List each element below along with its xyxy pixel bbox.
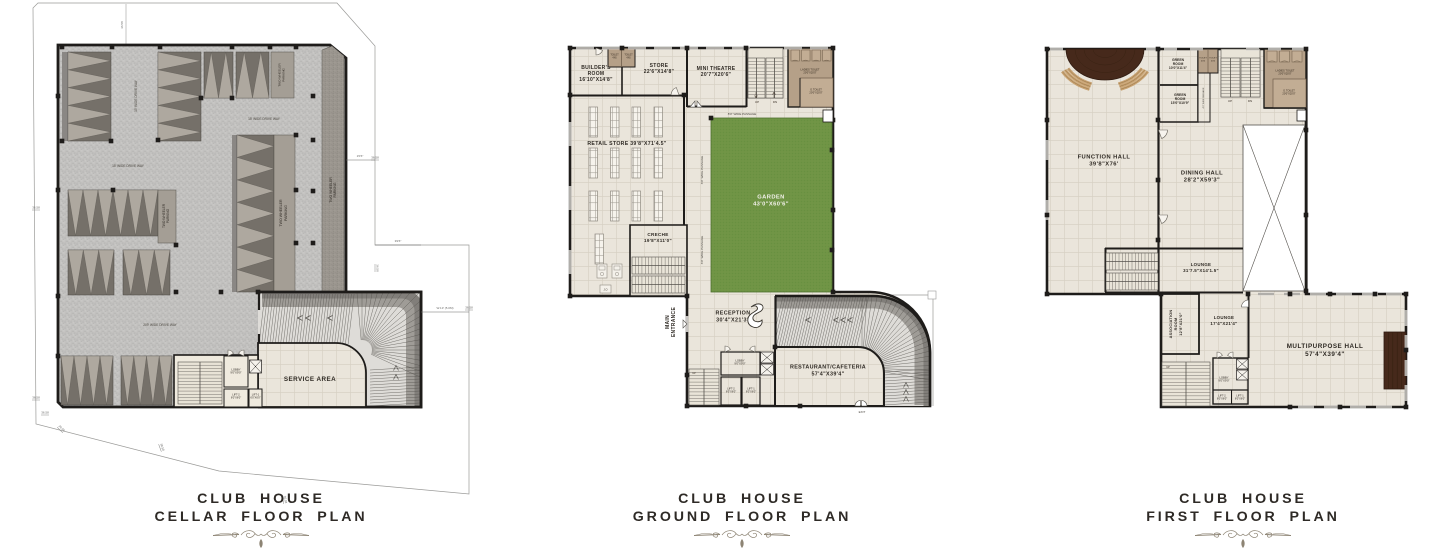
svg-text:20'0"X20'0": 20'0"X20'0": [1278, 72, 1291, 76]
svg-text:6'0"X6'0": 6'0"X6'0": [746, 390, 756, 394]
svg-text:DINING HALL: DINING HALL: [1181, 170, 1223, 176]
svg-text:SERVICE AREA: SERVICE AREA: [284, 376, 336, 383]
svg-text:PARKING: PARKING: [284, 205, 288, 221]
svg-text:UP: UP: [1228, 99, 1232, 103]
svg-text:UP: UP: [755, 100, 759, 104]
svg-text:CRECHE: CRECHE: [647, 232, 668, 237]
svg-text:12'8"X21'0": 12'8"X21'0": [1179, 312, 1183, 335]
svg-text:LOUNGE: LOUNGE: [1191, 262, 1212, 267]
svg-text:31'7.5"X14'1.5": 31'7.5"X14'1.5": [1183, 268, 1219, 273]
svg-text:20'0"X20'0": 20'0"X20'0": [809, 91, 822, 95]
svg-text:ENTRANCE: ENTRANCE: [671, 307, 677, 338]
svg-text:PARKING: PARKING: [281, 68, 285, 82]
svg-text:10'0"X11'4": 10'0"X11'4": [1169, 66, 1188, 70]
svg-text:GROUND FLOOR PLAN: GROUND FLOOR PLAN: [633, 509, 852, 525]
svg-text:MULTIPURPOSE HALL: MULTIPURPOSE HALL: [1287, 343, 1364, 350]
svg-text:39'8"X76': 39'8"X76': [1089, 162, 1119, 168]
svg-text:36.58: 36.58: [376, 264, 380, 272]
svg-text:43'0"X60'6": 43'0"X60'6": [753, 202, 789, 208]
svg-text:20'0"X20'0": 20'0"X20'0": [1282, 92, 1295, 96]
svg-text:FIRST FLOOR PLAN: FIRST FLOOR PLAN: [1146, 509, 1340, 525]
svg-text:36.58: 36.58: [120, 21, 124, 29]
svg-text:6'0" WIDE PASSAGE: 6'0" WIDE PASSAGE: [700, 236, 704, 265]
svg-text:FUNCTION HALL: FUNCTION HALL: [1078, 154, 1131, 160]
svg-text:EXIT: EXIT: [859, 410, 866, 414]
svg-text:9'0"X9'0": 9'0"X9'0": [1218, 379, 1229, 383]
svg-text:ROOM: ROOM: [1174, 318, 1178, 331]
svg-text:ROOM: ROOM: [588, 71, 605, 77]
svg-text:17'4"X21'4": 17'4"X21'4": [1210, 321, 1237, 326]
svg-text:BUILDER'S: BUILDER'S: [581, 65, 611, 71]
svg-text:6'0"X6'0": 6'0"X6'0": [726, 390, 736, 394]
svg-text:6'0"X6'0": 6'0"X6'0": [250, 396, 260, 400]
svg-text:36.58: 36.58: [41, 411, 49, 415]
svg-text:CELLAR FLOOR PLAN: CELLAR FLOOR PLAN: [155, 509, 368, 525]
svg-text:9'0"X9'0": 9'0"X9'0": [230, 371, 241, 375]
svg-text:36.58: 36.58: [371, 156, 379, 160]
svg-text:20'0"X20'0": 20'0"X20'0": [803, 71, 816, 75]
svg-text:4X6: 4X6: [626, 56, 631, 59]
svg-text:39'6": 39'6": [395, 239, 402, 243]
svg-text:4'0" WIDE PASSAGE: 4'0" WIDE PASSAGE: [1202, 87, 1205, 108]
svg-text:STORE: STORE: [650, 63, 669, 69]
svg-text:15'6": 15'6": [357, 154, 364, 158]
svg-text:15' WIDE DRIVE WAY: 15' WIDE DRIVE WAY: [112, 164, 145, 168]
svg-text:CLUB HOUSE: CLUB HOUSE: [1179, 491, 1307, 507]
svg-text:PARKING: PARKING: [333, 182, 337, 197]
svg-text:4X6: 4X6: [612, 56, 617, 59]
svg-text:30'4"X21'3": 30'4"X21'3": [716, 317, 750, 323]
svg-text:9'0"X9'0": 9'0"X9'0": [734, 362, 745, 366]
svg-text:CLUB HOUSE: CLUB HOUSE: [197, 491, 325, 507]
svg-text:UP: UP: [1166, 365, 1170, 369]
svg-text:LOUNGE: LOUNGE: [1214, 315, 1235, 320]
svg-text:MINI THEATRE: MINI THEATRE: [697, 66, 736, 72]
svg-text:15' WIDE DRIVE WAY: 15' WIDE DRIVE WAY: [134, 79, 138, 112]
svg-text:15'0"X10'9": 15'0"X10'9": [1171, 101, 1190, 105]
svg-text:PARKING: PARKING: [166, 208, 170, 223]
svg-text:22'6"X14'8": 22'6"X14'8": [644, 69, 675, 75]
svg-text:J.O: J.O: [603, 288, 607, 292]
svg-text:28'2"X59'3": 28'2"X59'3": [1184, 178, 1220, 184]
svg-text:W.13' (5.0M): W.13' (5.0M): [437, 306, 454, 310]
svg-text:6'0"X6'0": 6'0"X6'0": [1235, 397, 1245, 401]
svg-text:15' WIDE DRIVE WAY: 15' WIDE DRIVE WAY: [248, 117, 281, 121]
svg-text:57'4"X39'4": 57'4"X39'4": [811, 372, 844, 378]
svg-text:36.58: 36.58: [32, 206, 40, 210]
svg-text:57'4"X39'4": 57'4"X39'4": [1305, 351, 1345, 358]
svg-text:8'0" WIDE PASSAGE: 8'0" WIDE PASSAGE: [728, 112, 757, 116]
svg-text:RECEPTION: RECEPTION: [715, 311, 750, 317]
svg-text:ASSOCIATION: ASSOCIATION: [1169, 310, 1173, 339]
svg-text:DN: DN: [1248, 99, 1252, 103]
svg-text:20'7"X20'6": 20'7"X20'6": [701, 72, 732, 78]
svg-text:6'0"X6'0": 6'0"X6'0": [231, 396, 241, 400]
svg-text:16'10"X14'8": 16'10"X14'8": [579, 77, 613, 83]
svg-text:RESTAURANT/CAFETERIA: RESTAURANT/CAFETERIA: [790, 365, 866, 371]
svg-text:RETAIL STORE 39'8"X71'4.5": RETAIL STORE 39'8"X71'4.5": [587, 141, 666, 147]
svg-text:UP: UP: [692, 371, 696, 375]
svg-text:DN: DN: [773, 100, 777, 104]
svg-text:209' WIDE DRIVE WAY: 209' WIDE DRIVE WAY: [143, 323, 177, 327]
svg-text:CLUB HOUSE: CLUB HOUSE: [678, 491, 806, 507]
svg-text:6'0" WIDE PASSAGE: 6'0" WIDE PASSAGE: [700, 156, 704, 185]
svg-text:36.58: 36.58: [32, 396, 40, 400]
svg-text:6'0"X6'0": 6'0"X6'0": [1217, 397, 1227, 401]
svg-text:19'8"X11'0": 19'8"X11'0": [644, 238, 672, 243]
svg-text:36.58: 36.58: [465, 306, 473, 310]
svg-text:GARDEN: GARDEN: [757, 194, 785, 200]
svg-text:TWO WHEELER: TWO WHEELER: [279, 199, 283, 227]
